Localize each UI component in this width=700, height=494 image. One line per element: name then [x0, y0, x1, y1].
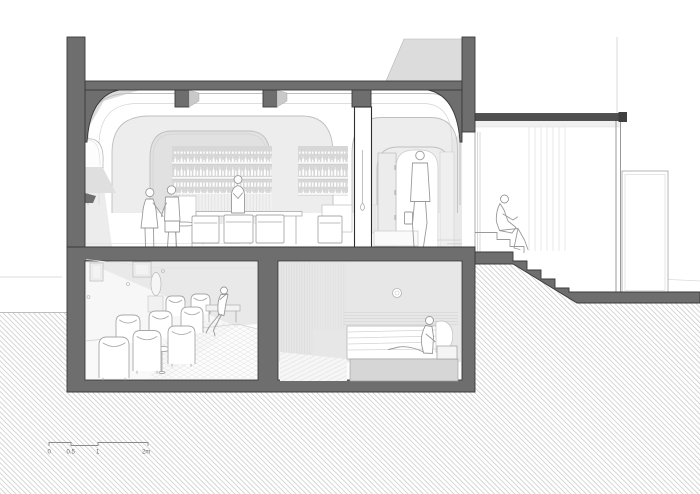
seat-cube	[256, 215, 284, 243]
picture-frame	[133, 262, 151, 277]
curtain-panel	[280, 262, 312, 365]
partition-head	[352, 88, 371, 107]
bench-low	[374, 231, 418, 246]
wardrobe-panel	[440, 152, 454, 247]
door-hinge	[394, 215, 396, 220]
bottle-row	[173, 183, 272, 194]
tub-chair	[168, 326, 195, 367]
bed-step	[437, 346, 457, 359]
ceiling-slab	[85, 81, 462, 90]
picture-frame	[90, 263, 103, 281]
right-wall-upper	[462, 37, 475, 132]
scale-label-2m: 2m	[142, 450, 150, 456]
basement-bedroom	[279, 262, 461, 381]
seat-cube	[224, 215, 253, 243]
ceiling-beam	[263, 90, 277, 107]
bottle-row	[299, 167, 348, 178]
ceiling-light	[393, 289, 402, 298]
door-leaf-open	[622, 171, 668, 294]
scale-label-05: 0.5	[67, 450, 76, 456]
tub-chair	[133, 331, 161, 374]
bottle-row	[173, 152, 272, 163]
bottle-row	[173, 167, 272, 178]
bottle-row	[299, 152, 348, 163]
ceiling-beam	[175, 90, 189, 107]
annex-roof-endcap	[619, 112, 628, 122]
shopping-bag	[405, 212, 413, 224]
door-hinge	[394, 190, 396, 195]
roof-fascia	[475, 121, 621, 128]
glazed-partition-cut	[355, 107, 372, 248]
architectural-section-drawing: 0 0.5 1 2m	[0, 0, 700, 494]
back-bar-shelves	[172, 146, 348, 195]
bed-base	[350, 359, 458, 381]
tub-chair	[99, 337, 129, 380]
seat-cube	[318, 216, 342, 243]
bed	[347, 321, 458, 381]
section-drawing-svg: 0 0.5 1 2m	[0, 0, 700, 494]
curtain-panel-2	[312, 262, 345, 330]
left-wall	[67, 37, 85, 247]
seat-cube	[192, 216, 219, 243]
door-hinge	[394, 165, 396, 170]
annex-roof-slab	[475, 114, 622, 121]
basement-lounge	[86, 260, 257, 381]
bottle-row	[299, 183, 348, 194]
